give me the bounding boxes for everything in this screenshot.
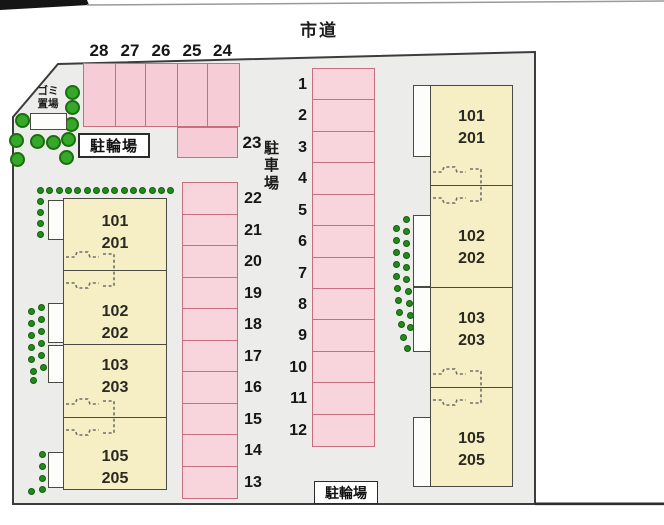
tree-dot-icon bbox=[398, 321, 405, 328]
tree-dot-icon bbox=[403, 252, 410, 259]
tree-dot-icon bbox=[393, 273, 400, 280]
tree-dot-icon bbox=[30, 377, 37, 384]
tree-dot-icon bbox=[111, 187, 118, 194]
tree-dot-icon bbox=[39, 451, 46, 458]
unit-number-lower: 205 bbox=[63, 468, 167, 490]
unit-number-upper: 103 bbox=[430, 308, 513, 330]
site-plan-canvas: 2827262524232221201918171615141312345678… bbox=[0, 0, 664, 525]
tree-dot-icon bbox=[39, 475, 46, 482]
unit-number-label: 101201 bbox=[63, 211, 167, 254]
parking-space bbox=[83, 63, 117, 127]
tree-dot-icon bbox=[28, 308, 35, 315]
tree-dot-icon bbox=[93, 187, 100, 194]
tree-dot-icon bbox=[403, 276, 410, 283]
tree-bush-icon bbox=[46, 135, 61, 150]
tree-dot-icon bbox=[28, 488, 35, 495]
building-unit-divider bbox=[63, 270, 167, 271]
tree-dot-icon bbox=[39, 486, 46, 493]
parking-lot-label: 駐車場 bbox=[263, 140, 280, 192]
tree-dot-icon bbox=[403, 228, 410, 235]
tree-dot-icon bbox=[403, 240, 410, 247]
unit-number-upper: 101 bbox=[430, 106, 513, 128]
unit-number-upper: 105 bbox=[63, 446, 167, 468]
unit-number-upper: 102 bbox=[63, 301, 167, 323]
tree-dot-icon bbox=[406, 300, 413, 307]
garbage-box bbox=[30, 113, 67, 130]
unit-number-upper: 101 bbox=[63, 211, 167, 233]
entrance-notch bbox=[413, 417, 431, 487]
unit-number-label: 105205 bbox=[430, 428, 513, 471]
parking-space bbox=[312, 288, 375, 321]
tree-dot-icon bbox=[130, 187, 137, 194]
unit-number-label: 103203 bbox=[63, 355, 167, 398]
tree-dot-icon bbox=[37, 198, 44, 205]
parking-space-number: 1 bbox=[281, 77, 307, 93]
tree-dot-icon bbox=[149, 187, 156, 194]
entrance-notch bbox=[48, 345, 64, 383]
parking-space bbox=[312, 131, 375, 164]
tree-dot-icon bbox=[56, 187, 63, 194]
bicycle-parking-bottom-sign: 駐輪場 bbox=[314, 481, 378, 504]
parking-space-number: 22 bbox=[240, 191, 266, 207]
parking-space-number: 15 bbox=[240, 412, 266, 428]
parking-space bbox=[312, 319, 375, 352]
parking-space-number: 5 bbox=[281, 203, 307, 219]
parking-space-number: 7 bbox=[281, 266, 307, 282]
tree-dot-icon bbox=[393, 249, 400, 256]
entrance-notch bbox=[48, 200, 64, 240]
tree-dot-icon bbox=[102, 187, 109, 194]
parking-space-number: 20 bbox=[240, 254, 266, 270]
parking-space bbox=[182, 466, 238, 499]
garbage-label-line1: ゴミ bbox=[38, 85, 59, 97]
tree-dot-icon bbox=[404, 345, 411, 352]
parking-space bbox=[182, 214, 238, 247]
parking-space-number: 16 bbox=[240, 380, 266, 396]
parking-space-number: 13 bbox=[240, 475, 266, 491]
parking-space bbox=[312, 194, 375, 227]
tree-dot-icon bbox=[139, 187, 146, 194]
building-unit-divider bbox=[430, 185, 513, 186]
tree-dot-icon bbox=[38, 328, 45, 335]
parking-space bbox=[182, 308, 238, 341]
tree-dot-icon bbox=[38, 304, 45, 311]
unit-number-lower: 203 bbox=[430, 330, 513, 352]
tree-dot-icon bbox=[37, 187, 44, 194]
tree-dot-icon bbox=[394, 285, 401, 292]
parking-space bbox=[182, 434, 238, 467]
parking-space-number: 18 bbox=[240, 317, 266, 333]
tree-dot-icon bbox=[37, 220, 44, 227]
entrance-notch bbox=[48, 452, 64, 488]
unit-number-upper: 105 bbox=[430, 428, 513, 450]
tree-dot-icon bbox=[396, 309, 403, 316]
entrance-notch bbox=[413, 287, 431, 352]
parking-space bbox=[312, 162, 375, 195]
parking-space-number: 3 bbox=[281, 140, 307, 156]
tree-dot-icon bbox=[38, 352, 45, 359]
tree-dot-icon bbox=[39, 463, 46, 470]
bicycle-parking-top-sign: 駐輪場 bbox=[78, 133, 150, 158]
garbage-area-label: ゴミ 置場 bbox=[31, 85, 65, 111]
unit-number-upper: 103 bbox=[63, 355, 167, 377]
parking-space-number: 8 bbox=[281, 297, 307, 313]
tree-dot-icon bbox=[121, 187, 128, 194]
parking-space bbox=[115, 63, 147, 127]
road-label: 市道 bbox=[300, 16, 338, 41]
parking-space bbox=[182, 245, 238, 278]
parking-space bbox=[182, 277, 238, 310]
tree-bush-icon bbox=[10, 152, 25, 167]
tree-dot-icon bbox=[28, 320, 35, 327]
plan-elements: 2827262524232221201918171615141312345678… bbox=[0, 0, 664, 525]
parking-space-number: 21 bbox=[240, 223, 266, 239]
bicycle-parking-top-label: 駐輪場 bbox=[90, 135, 138, 156]
parking-space bbox=[182, 340, 238, 373]
building-unit-divider bbox=[430, 387, 513, 388]
parking-space bbox=[312, 414, 375, 447]
parking-space bbox=[177, 63, 209, 127]
unit-number-upper: 102 bbox=[430, 226, 513, 248]
parking-space-number: 14 bbox=[240, 443, 266, 459]
tree-bush-icon bbox=[59, 150, 74, 165]
entrance-notch bbox=[413, 85, 431, 157]
unit-number-label: 103203 bbox=[430, 308, 513, 351]
parking-space bbox=[312, 68, 375, 101]
unit-number-label: 105205 bbox=[63, 446, 167, 489]
tree-dot-icon bbox=[65, 187, 72, 194]
entrance-notch bbox=[413, 215, 431, 287]
parking-space-number: 19 bbox=[240, 286, 266, 302]
entrance-notch bbox=[48, 303, 64, 343]
parking-space bbox=[182, 403, 238, 436]
tree-dot-icon bbox=[405, 288, 412, 295]
parking-space bbox=[182, 182, 238, 215]
tree-dot-icon bbox=[393, 261, 400, 268]
tree-dot-icon bbox=[74, 187, 81, 194]
unit-number-lower: 202 bbox=[63, 323, 167, 345]
unit-number-lower: 201 bbox=[430, 128, 513, 150]
tree-dot-icon bbox=[37, 231, 44, 238]
tree-dot-icon bbox=[28, 332, 35, 339]
parking-space-number: 6 bbox=[281, 234, 307, 250]
tree-dot-icon bbox=[28, 356, 35, 363]
parking-space-number: 23 bbox=[239, 134, 265, 151]
tree-dot-icon bbox=[84, 187, 91, 194]
unit-number-lower: 202 bbox=[430, 248, 513, 270]
building-unit-divider bbox=[430, 287, 513, 288]
tree-dot-icon bbox=[37, 209, 44, 216]
parking-space-number: 12 bbox=[281, 423, 307, 439]
parking-space-number: 10 bbox=[281, 360, 307, 376]
tree-dot-icon bbox=[393, 225, 400, 232]
tree-dot-icon bbox=[30, 368, 37, 375]
tree-dot-icon bbox=[38, 316, 45, 323]
parking-space bbox=[207, 63, 240, 127]
bicycle-parking-bottom-label: 駐輪場 bbox=[325, 483, 367, 503]
tree-dot-icon bbox=[28, 344, 35, 351]
tree-bush-icon bbox=[65, 85, 80, 100]
parking-space-number: 11 bbox=[281, 391, 307, 407]
parking-space bbox=[312, 382, 375, 415]
parking-space bbox=[177, 127, 238, 158]
parking-space bbox=[312, 99, 375, 132]
garbage-label-line2: 置場 bbox=[38, 98, 59, 110]
parking-space bbox=[312, 257, 375, 290]
tree-dot-icon bbox=[158, 187, 165, 194]
building-unit-divider bbox=[63, 344, 167, 345]
parking-space bbox=[312, 225, 375, 258]
parking-space-number: 4 bbox=[281, 171, 307, 187]
building-unit-divider bbox=[63, 417, 167, 418]
parking-space-number: 26 bbox=[145, 42, 177, 59]
parking-space-number: 9 bbox=[281, 328, 307, 344]
parking-space bbox=[145, 63, 179, 127]
parking-space bbox=[312, 351, 375, 384]
tree-bush-icon bbox=[9, 133, 24, 148]
tree-dot-icon bbox=[403, 216, 410, 223]
tree-bush-icon bbox=[30, 134, 45, 149]
tree-dot-icon bbox=[40, 364, 47, 371]
parking-space-number: 28 bbox=[83, 42, 115, 59]
unit-number-label: 102202 bbox=[63, 301, 167, 344]
tree-bush-icon bbox=[15, 113, 30, 128]
parking-space bbox=[182, 371, 238, 404]
tree-dot-icon bbox=[393, 237, 400, 244]
tree-bush-icon bbox=[61, 132, 76, 147]
tree-dot-icon bbox=[46, 187, 53, 194]
tree-dot-icon bbox=[400, 334, 407, 341]
tree-dot-icon bbox=[395, 297, 402, 304]
tree-dot-icon bbox=[403, 264, 410, 271]
parking-space-number: 27 bbox=[115, 42, 145, 59]
parking-space-number: 2 bbox=[281, 108, 307, 124]
tree-dot-icon bbox=[38, 340, 45, 347]
tree-dot-icon bbox=[167, 187, 174, 194]
unit-number-label: 101201 bbox=[430, 106, 513, 149]
parking-space-number: 17 bbox=[240, 349, 266, 365]
parking-space-number: 24 bbox=[207, 42, 238, 59]
parking-space-number: 25 bbox=[177, 42, 207, 59]
unit-number-label: 102202 bbox=[430, 226, 513, 269]
unit-number-lower: 205 bbox=[430, 450, 513, 472]
unit-number-lower: 203 bbox=[63, 377, 167, 399]
unit-number-lower: 201 bbox=[63, 233, 167, 255]
